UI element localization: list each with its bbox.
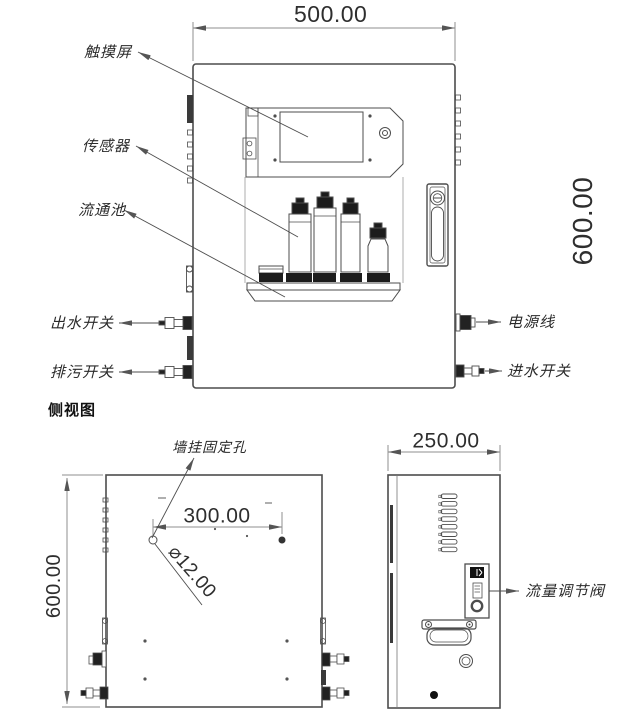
sensor-label: 传感器 [82,139,130,154]
left-edge-hardware [159,95,193,379]
rear-right-edge-hardware [321,618,350,700]
flow-cell-tray [247,283,400,301]
dimension-width [193,22,455,61]
sensor-bottles [259,192,390,282]
power-cable-label: 电源线 [507,315,555,330]
sensor-bottle [368,223,388,272]
drain-valve-fitting [159,366,192,379]
drain-port [460,655,473,668]
dimension-height-rear [62,475,103,707]
hinge-strip [390,505,393,563]
hinge-strip [390,573,393,643]
flow-cell-label: 流通池 [78,203,126,218]
dim-width-label: 500.00 [294,3,367,26]
wall-mount-hole-label: 墙挂固定孔 [172,440,247,454]
door-handle [427,184,448,266]
drawing-linework [0,0,628,719]
inlet-valve-fitting [456,365,484,377]
side-view [388,445,519,708]
drain-switch-label: 排污开关 [50,365,114,380]
side-cabinet-outline [388,475,500,708]
rotameter [473,583,482,598]
wall-mount-hole-left [149,536,157,544]
side-view-caption: 侧视图 [48,403,96,418]
front-view [119,22,502,388]
outlet-switch-label: 出水开关 [50,316,114,331]
inlet-switch-label: 进水开关 [507,364,571,379]
sample-cup [259,266,283,273]
bottle-holders [259,273,390,282]
panel-lock [380,128,391,139]
sensor-bottle [314,192,336,272]
rear-left-edge-hardware [81,498,108,699]
technical-drawing-page: 500.00 600.00 触摸屏 传感器 流通池 出水开关 排污开关 电源线 … [0,0,628,719]
bottom-plug [430,691,438,699]
dim-hole-spacing-label: 300.00 [183,506,250,527]
dim-height-label-front: 600.00 [569,177,597,266]
dim-depth-label: 250.00 [412,431,479,452]
power-gland-fitting [456,314,475,331]
sensor-bottle [341,198,360,272]
wall-mount-hole-right [279,537,286,544]
touch-screen-label: 触摸屏 [84,45,132,60]
flow-valve-label: 流量调节阀 [525,584,605,599]
touch-screen-panel [243,108,403,177]
panel-hinge [243,138,256,159]
flow-valve-panel [465,564,489,618]
door-latch [187,266,193,292]
dim-height-label-rear: 600.00 [44,554,64,618]
vent-louvers [439,494,457,552]
right-edge-hardware [456,95,485,377]
outlet-valve-fitting [159,317,192,330]
sensor-bottle [289,198,311,272]
touch-screen [280,112,363,162]
carry-handle [422,620,476,645]
